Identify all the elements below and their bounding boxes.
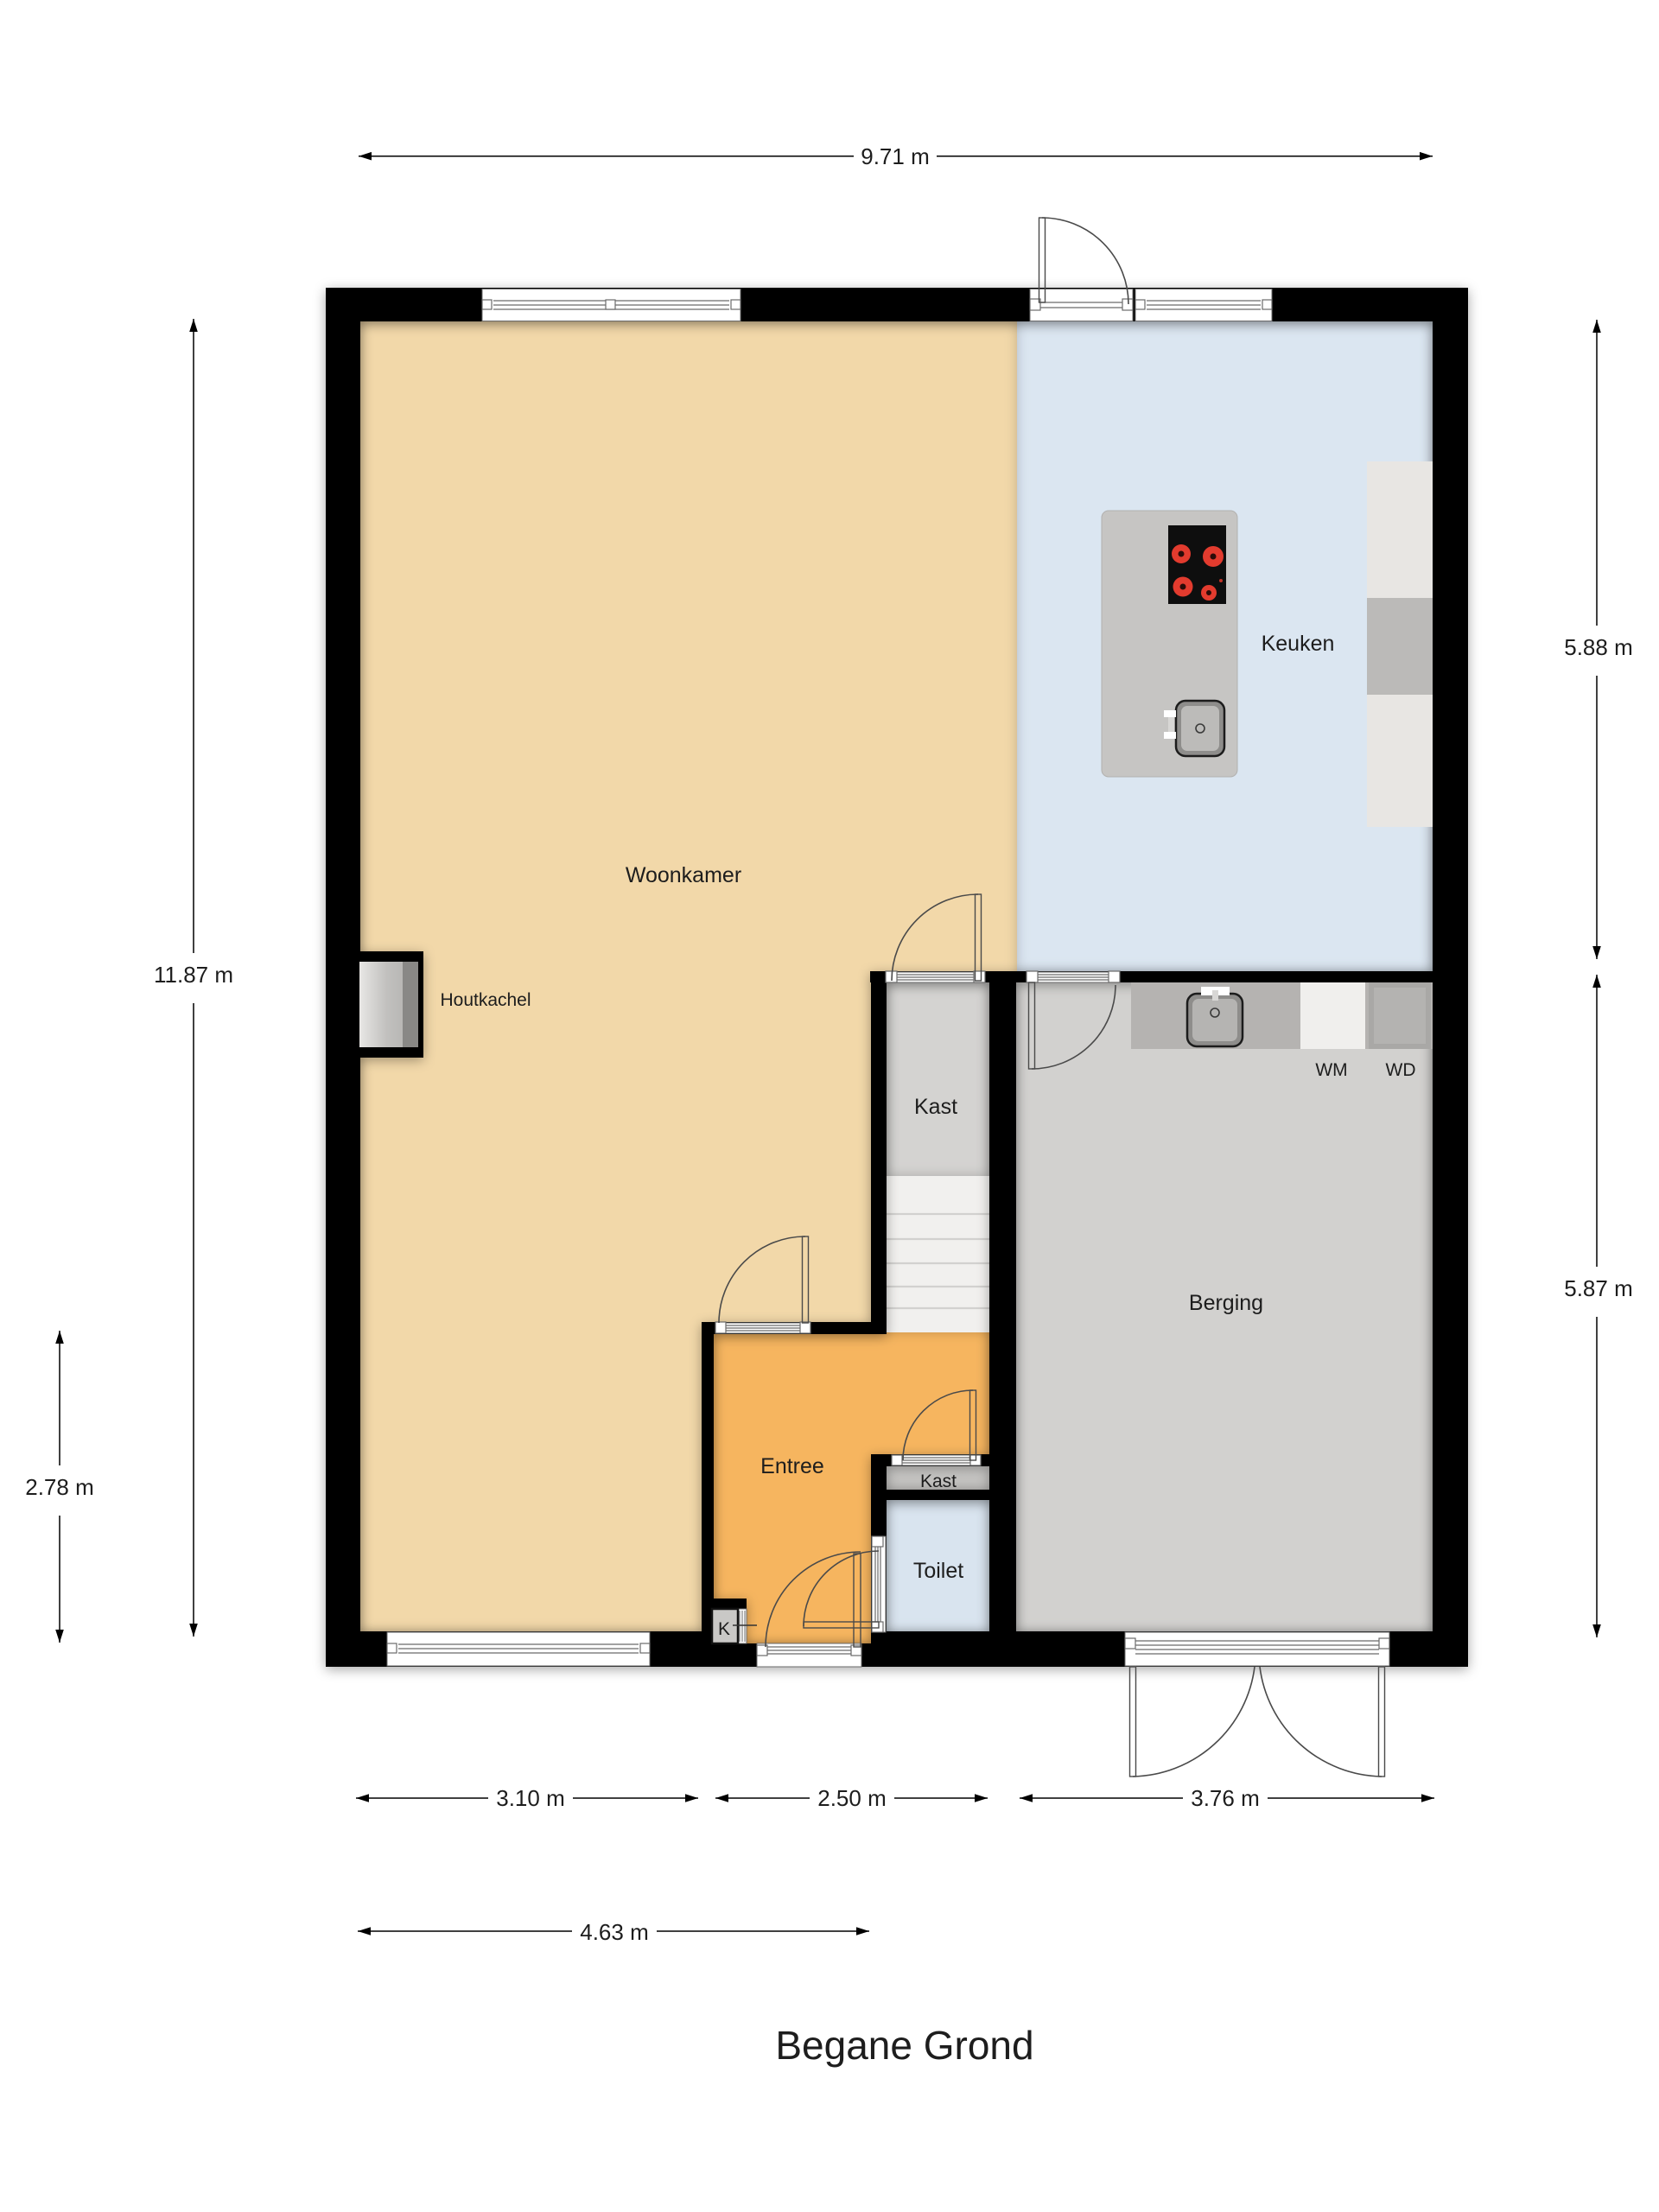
svg-text:Houtkachel: Houtkachel [440,990,531,1010]
svg-text:3.10 m: 3.10 m [496,1785,565,1811]
svg-text:4.63 m: 4.63 m [580,1919,649,1945]
svg-text:WM: WM [1315,1060,1347,1080]
svg-text:9.71 m: 9.71 m [861,143,930,169]
svg-text:Kast: Kast [914,1095,957,1119]
svg-text:Begane Grond: Begane Grond [775,2023,1033,2068]
svg-text:Entree: Entree [760,1454,824,1478]
svg-text:Toilet: Toilet [913,1559,963,1583]
svg-text:Woonkamer: Woonkamer [626,863,741,887]
svg-text:5.88 m: 5.88 m [1564,634,1633,660]
svg-text:Berging: Berging [1189,1291,1263,1315]
svg-text:2.78 m: 2.78 m [25,1474,94,1500]
svg-text:Kast: Kast [920,1471,957,1491]
svg-text:3.76 m: 3.76 m [1191,1785,1260,1811]
svg-text:2.50 m: 2.50 m [817,1785,887,1811]
svg-text:K: K [718,1619,730,1639]
svg-text:WD: WD [1386,1060,1416,1080]
svg-text:11.87 m: 11.87 m [154,962,233,988]
svg-text:5.87 m: 5.87 m [1564,1275,1633,1301]
svg-text:Keuken: Keuken [1262,632,1335,656]
